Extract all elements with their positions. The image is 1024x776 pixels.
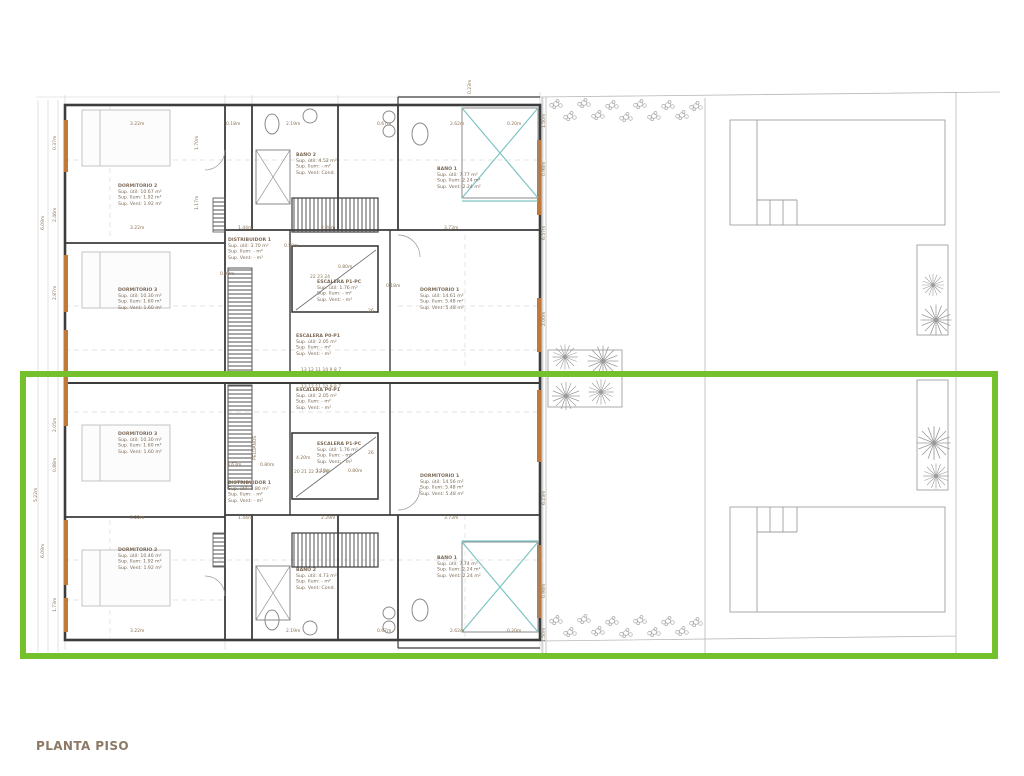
tree-icon — [921, 305, 952, 336]
tree-icon — [922, 274, 944, 296]
tree-icon — [552, 344, 577, 369]
drawing-title: PLANTA PISO — [36, 739, 129, 753]
pool-outline — [730, 120, 945, 225]
floor-plan-sheet: DORMITORIO 2Sup. útil: 10.67 m²Sup. Ilum… — [0, 0, 1024, 776]
selection-highlight-rectangle — [20, 371, 998, 659]
